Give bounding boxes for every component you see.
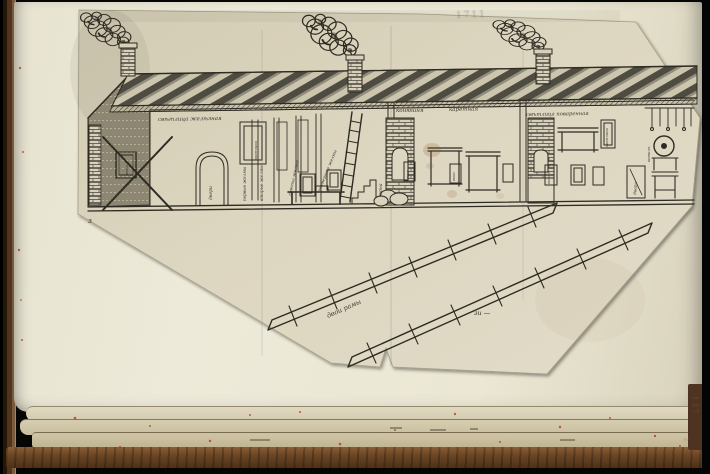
label-measure-mark: зи — bbox=[474, 309, 491, 317]
chimney-middle bbox=[346, 55, 364, 92]
label-right-small-window-label: окно bbox=[547, 175, 551, 184]
label-room2-title-a: конюшня bbox=[396, 108, 424, 114]
label-pencil-inscription: 1711 bbox=[456, 10, 487, 21]
chimney-right bbox=[534, 49, 552, 84]
label-folio-number: 137 bbox=[691, 396, 699, 415]
label-furnace-label: горна bbox=[379, 183, 384, 197]
label-mid-window-label-2: окно bbox=[452, 172, 456, 181]
label-pencil-smudge: 2 bbox=[682, 437, 690, 444]
label-right-window-label: окончина bbox=[604, 127, 609, 147]
label-post-label-1: первые желмы bbox=[242, 166, 247, 201]
manuscript-drawing: свѣтлица желѣзнаяконюшнякаретнаясвѣтлица… bbox=[0, 0, 710, 474]
edge-marks bbox=[250, 428, 575, 440]
label-cauldron-label: котелъ bbox=[646, 146, 651, 162]
book-photograph: свѣтлица желѣзнаяконюшнякаретнаясвѣтлица… bbox=[0, 0, 710, 474]
label-room3-title: свѣтлица поваренная bbox=[526, 111, 589, 118]
label-room1-title: свѣтлица желѣзная bbox=[158, 116, 222, 123]
label-mid-window-label-1: окно bbox=[406, 170, 410, 179]
chimney-left bbox=[119, 43, 137, 76]
label-door-label-left: двери bbox=[208, 186, 214, 200]
label-post-label-2: вторые желмы bbox=[259, 165, 264, 201]
label-cross-window-label: окно bbox=[124, 165, 129, 175]
label-corner-mark: з bbox=[88, 217, 92, 225]
label-room2-title-b: каретная bbox=[449, 106, 479, 113]
label-window-label-top-left: окончина bbox=[253, 140, 258, 160]
